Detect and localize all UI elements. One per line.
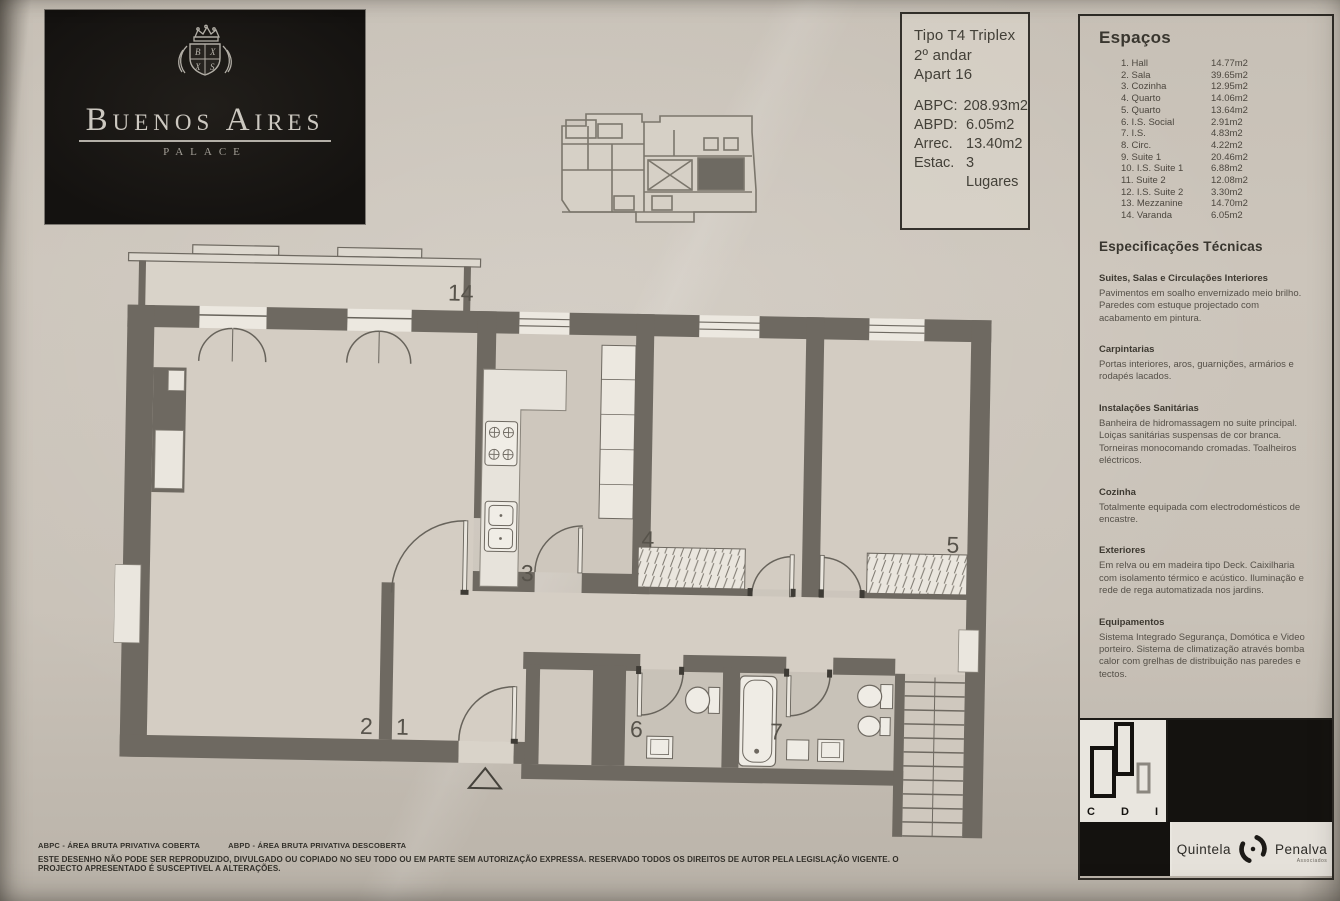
svg-text:S: S [210, 62, 215, 72]
unit-title-block: Tipo T4 Triplex 2º andar Apart 16 ABPC:2… [900, 12, 1030, 230]
space-row: 13. Mezzanine14.70m2 [1121, 198, 1332, 210]
space-name: 6. I.S. Social [1121, 117, 1211, 129]
space-row: 2. Sala39.65m2 [1121, 70, 1332, 82]
svg-text:B: B [195, 47, 201, 57]
footer-legend: ABPC - ÁREA BRUTA PRIVATIVA COBERTA ABPD… [38, 841, 406, 850]
space-row: 7. I.S.4.83m2 [1121, 128, 1332, 140]
black-block [1168, 720, 1332, 822]
spec-body: Em relva ou em madeira tipo Deck. Caixil… [1099, 560, 1309, 597]
space-area: 12.08m2 [1211, 175, 1248, 187]
space-name: 12. I.S. Suite 2 [1121, 187, 1211, 199]
cdi-letters: CDI [1080, 806, 1166, 818]
space-area: 2.91m2 [1211, 117, 1243, 129]
brand-title: Buenos Aires [45, 105, 365, 135]
unit-number: Apart 16 [914, 65, 1028, 85]
spec-section: Suites, Salas e Circulações InterioresPa… [1099, 273, 1309, 325]
space-area: 20.46m2 [1211, 152, 1248, 164]
room-number-label: 1 [396, 714, 409, 740]
space-name: 3. Cozinha [1121, 81, 1211, 93]
spec-body: Portas interiores, aros, guarnições, arm… [1099, 359, 1309, 384]
unit-stat-row: Arrec.13.40m2 [914, 135, 1028, 154]
spec-heading: Exteriores [1099, 545, 1309, 556]
spaces-title: Espaços [1099, 28, 1332, 48]
cdi-letter: C [1087, 806, 1096, 818]
space-row: 10. I.S. Suite 16.88m2 [1121, 163, 1332, 175]
partner-name-left: Quintela [1177, 842, 1231, 857]
specs-panel: Espaços 1. Hall14.77m22. Sala39.65m23. C… [1078, 14, 1334, 880]
floor-plan: 142134567 [110, 239, 1001, 855]
spec-body: Sistema Integrado Segurança, Domótica e … [1099, 632, 1309, 682]
room-number-label: 7 [770, 718, 783, 744]
partner-name-right: Penalva Associados [1275, 842, 1327, 857]
space-name: 4. Quarto [1121, 93, 1211, 105]
space-area: 39.65m2 [1211, 70, 1248, 82]
space-area: 13.64m2 [1211, 105, 1248, 117]
spec-body: Pavimentos em soalho envernizado meio br… [1099, 288, 1309, 325]
space-area: 6.88m2 [1211, 163, 1243, 175]
stat-value: 6.05m2 [966, 116, 1028, 135]
spec-section: CarpintariasPortas interiores, aros, gua… [1099, 344, 1309, 384]
spec-heading: Carpintarias [1099, 344, 1309, 355]
stat-label: ABPC: [914, 97, 964, 116]
swirl-icon [1238, 834, 1268, 864]
unit-stat-row: Estac.3 Lugares [914, 154, 1028, 192]
space-row: 8. Circ.4.22m2 [1121, 140, 1332, 152]
space-name: 8. Circ. [1121, 140, 1211, 152]
space-row: 12. I.S. Suite 23.30m2 [1121, 187, 1332, 199]
space-area: 14.70m2 [1211, 198, 1248, 210]
room-number-label: 4 [641, 526, 654, 552]
space-row: 11. Suite 212.08m2 [1121, 175, 1332, 187]
stat-label: Estac. [914, 154, 966, 192]
spec-section: CozinhaTotalmente equipada com electrodo… [1099, 487, 1309, 527]
legend-abpd: ABPD - ÁREA BRUTA PRIVATIVA DESCOBERTA [228, 841, 406, 850]
space-area: 12.95m2 [1211, 81, 1248, 93]
space-row: 1. Hall14.77m2 [1121, 58, 1332, 70]
stat-label: Arrec. [914, 135, 966, 154]
room-number-label: 3 [521, 560, 534, 586]
spec-heading: Suites, Salas e Circulações Interiores [1099, 273, 1309, 284]
stat-value: 208.93m2 [964, 97, 1029, 116]
specs-title: Especificações Técnicas [1099, 239, 1332, 254]
black-block-2 [1080, 822, 1172, 876]
cdi-bars-icon [1080, 720, 1166, 800]
space-row: 5. Quarto13.64m2 [1121, 105, 1332, 117]
spec-section: ExterioresEm relva ou em madeira tipo De… [1099, 545, 1309, 597]
room-number-label: 5 [946, 532, 959, 558]
space-area: 14.77m2 [1211, 58, 1248, 70]
spec-heading: Equipamentos [1099, 617, 1309, 628]
room-number-label: 14 [448, 279, 474, 305]
space-area: 4.83m2 [1211, 128, 1243, 140]
partner-logos: CDI Quintela Penalva Associados [1080, 718, 1332, 876]
space-name: 13. Mezzanine [1121, 198, 1211, 210]
unit-stat-row: ABPC:208.93m2 [914, 97, 1028, 116]
stat-value: 3 Lugares [966, 154, 1028, 192]
space-area: 3.30m2 [1211, 187, 1243, 199]
partner-subtitle: Associados [1297, 858, 1328, 864]
cdi-letter: D [1121, 806, 1130, 818]
room-number-label: 6 [630, 716, 643, 742]
space-row: 14. Varanda6.05m2 [1121, 210, 1332, 222]
legend-abpc: ABPC - ÁREA BRUTA PRIVATIVA COBERTA [38, 841, 200, 850]
space-area: 14.06m2 [1211, 93, 1248, 105]
space-row: 3. Cozinha12.95m2 [1121, 81, 1332, 93]
key-plan [548, 100, 764, 228]
brand-rule [79, 140, 331, 142]
brand-box: BX XS Buenos Aires PALACE [45, 10, 365, 224]
space-row: 4. Quarto14.06m2 [1121, 93, 1332, 105]
spaces-list: 1. Hall14.77m22. Sala39.65m23. Cozinha12… [1099, 58, 1332, 222]
stat-value: 13.40m2 [966, 135, 1028, 154]
room-number-label: 2 [360, 713, 373, 739]
svg-text:X: X [194, 62, 201, 72]
cdi-logo: CDI [1080, 720, 1168, 822]
quintela-penalva-logo: Quintela Penalva Associados [1172, 822, 1332, 876]
space-name: 7. I.S. [1121, 128, 1211, 140]
unit-type: Tipo T4 Triplex [914, 26, 1028, 46]
space-name: 1. Hall [1121, 58, 1211, 70]
svg-text:X: X [209, 47, 216, 57]
spec-section: EquipamentosSistema Integrado Segurança,… [1099, 617, 1309, 682]
spec-section: Instalações SanitáriasBanheira de hidrom… [1099, 403, 1309, 468]
brand-subtitle: PALACE [45, 146, 365, 158]
unit-stat-row: ABPD:6.05m2 [914, 116, 1028, 135]
space-name: 9. Suite 1 [1121, 152, 1211, 164]
cdi-letter: I [1155, 806, 1159, 818]
specs-sections: Suites, Salas e Circulações InterioresPa… [1099, 273, 1332, 681]
space-name: 2. Sala [1121, 70, 1211, 82]
spec-heading: Cozinha [1099, 487, 1309, 498]
unit-stats: ABPC:208.93m2ABPD:6.05m2Arrec.13.40m2Est… [914, 97, 1028, 192]
unit-floor: 2º andar [914, 46, 1028, 66]
spec-body: Banheira de hidromassagem no suite princ… [1099, 418, 1309, 468]
space-name: 10. I.S. Suite 1 [1121, 163, 1211, 175]
heraldic-crest-icon: BX XS [157, 24, 253, 98]
footer-disclaimer: ESTE DESENHO NÃO PODE SER REPRODUZIDO, D… [38, 855, 918, 873]
spec-body: Totalmente equipada com electrodoméstico… [1099, 502, 1309, 527]
stat-label: ABPD: [914, 116, 966, 135]
space-row: 6. I.S. Social2.91m2 [1121, 117, 1332, 129]
space-name: 5. Quarto [1121, 105, 1211, 117]
space-area: 6.05m2 [1211, 210, 1243, 222]
entrance-marker [469, 768, 501, 789]
space-name: 11. Suite 2 [1121, 175, 1211, 187]
space-name: 14. Varanda [1121, 210, 1211, 222]
space-row: 9. Suite 120.46m2 [1121, 152, 1332, 164]
space-area: 4.22m2 [1211, 140, 1243, 152]
spec-heading: Instalações Sanitárias [1099, 403, 1309, 414]
